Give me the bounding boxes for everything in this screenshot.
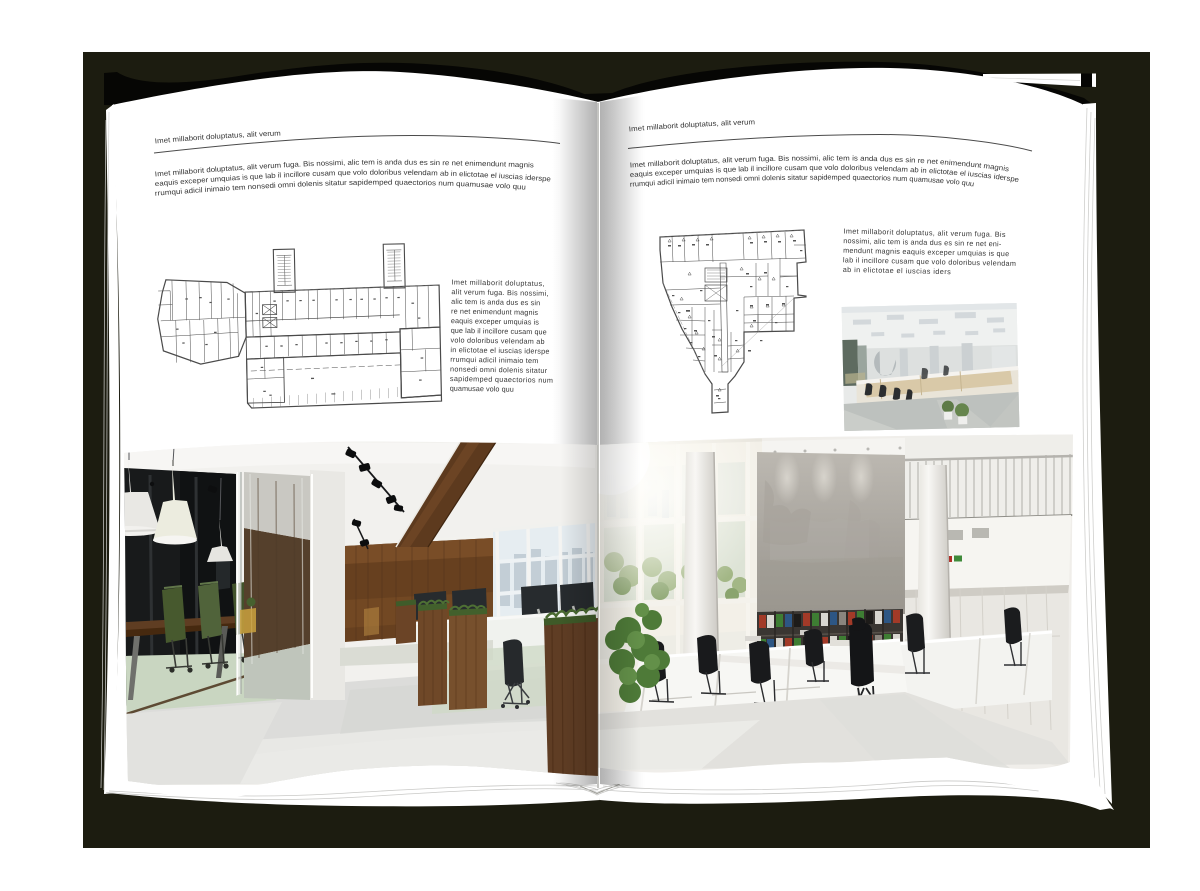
svg-text:alic tem is anda dus es sin: alic tem is anda dus es sin	[451, 297, 540, 307]
svg-text:rrumqui adicil inimaio tem: rrumqui adicil inimaio tem	[450, 355, 538, 365]
svg-text:quamusae volo quu: quamusae volo quu	[450, 384, 514, 394]
svg-text:eaquis exceper umquias is: eaquis exceper umquias is	[451, 316, 540, 326]
